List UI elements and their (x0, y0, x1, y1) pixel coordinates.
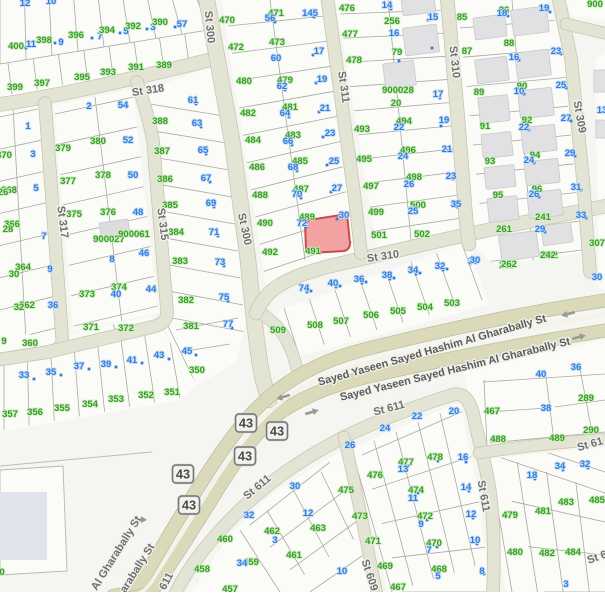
svg-text:30: 30 (339, 210, 350, 221)
svg-text:393: 393 (100, 67, 116, 78)
svg-text:93: 93 (485, 156, 496, 167)
svg-text:488: 488 (252, 190, 268, 201)
svg-text:19: 19 (439, 115, 450, 126)
svg-text:27: 27 (332, 183, 343, 194)
svg-text:507: 507 (333, 316, 349, 327)
svg-text:504: 504 (417, 302, 434, 313)
svg-text:376: 376 (100, 207, 116, 218)
svg-text:52: 52 (123, 135, 134, 146)
svg-text:354: 354 (82, 399, 99, 410)
svg-text:43: 43 (239, 416, 253, 431)
svg-text:27: 27 (561, 113, 572, 124)
svg-text:356: 356 (27, 407, 43, 418)
svg-text:386: 386 (157, 174, 173, 185)
svg-text:478: 478 (346, 55, 362, 66)
svg-text:17: 17 (314, 46, 325, 57)
svg-text:70: 70 (292, 189, 303, 200)
svg-text:242: 242 (540, 250, 556, 261)
svg-text:3: 3 (30, 149, 35, 160)
svg-text:23: 23 (446, 171, 457, 182)
svg-text:390: 390 (152, 17, 168, 28)
svg-text:472: 472 (228, 42, 244, 53)
svg-text:85: 85 (457, 12, 468, 23)
svg-text:34: 34 (555, 461, 566, 472)
svg-text:9: 9 (47, 264, 52, 275)
svg-text:77: 77 (223, 319, 234, 330)
svg-text:470: 470 (219, 15, 235, 26)
svg-text:351: 351 (164, 387, 181, 398)
svg-text:503: 503 (444, 298, 460, 309)
svg-text:30: 30 (470, 255, 481, 266)
svg-text:900: 900 (587, 0, 603, 10)
svg-text:372: 372 (118, 323, 134, 334)
svg-text:469: 469 (377, 561, 393, 572)
svg-text:21: 21 (442, 144, 453, 155)
svg-text:19: 19 (539, 3, 550, 14)
svg-text:38: 38 (541, 403, 552, 414)
svg-text:15: 15 (428, 12, 439, 23)
svg-text:17: 17 (433, 89, 444, 100)
svg-text:467: 467 (390, 582, 406, 592)
svg-text:12: 12 (466, 509, 477, 520)
svg-text:483: 483 (558, 497, 574, 508)
svg-text:355: 355 (54, 403, 71, 414)
svg-text:0: 0 (0, 567, 5, 578)
svg-text:36: 36 (571, 362, 582, 373)
svg-text:493: 493 (354, 124, 370, 135)
svg-text:18: 18 (497, 8, 508, 19)
svg-text:39: 39 (101, 359, 112, 370)
svg-text:467: 467 (484, 406, 500, 417)
svg-text:473: 473 (352, 511, 368, 522)
svg-text:40: 40 (111, 289, 122, 300)
svg-text:26: 26 (529, 189, 540, 200)
svg-text:9: 9 (418, 519, 423, 530)
svg-text:399: 399 (7, 82, 23, 93)
svg-text:16: 16 (389, 28, 400, 39)
svg-text:68: 68 (288, 162, 299, 173)
svg-text:262: 262 (501, 259, 517, 270)
svg-text:62: 62 (277, 81, 288, 92)
svg-text:482: 482 (240, 108, 256, 119)
svg-text:478: 478 (427, 452, 443, 463)
svg-text:381: 381 (183, 321, 200, 332)
svg-text:392: 392 (125, 21, 141, 32)
svg-text:10: 10 (514, 86, 525, 97)
svg-text:486: 486 (249, 162, 265, 173)
svg-text:38: 38 (382, 270, 393, 281)
svg-text:357: 357 (2, 409, 18, 420)
svg-text:383: 383 (172, 256, 188, 267)
svg-text:20: 20 (391, 98, 402, 109)
svg-text:66: 66 (283, 136, 294, 147)
svg-text:16: 16 (509, 52, 520, 63)
svg-text:74: 74 (299, 283, 310, 294)
svg-text:380: 380 (90, 136, 106, 147)
svg-text:60: 60 (271, 53, 282, 64)
svg-text:256: 256 (384, 16, 400, 27)
svg-text:7: 7 (426, 545, 431, 556)
svg-text:89: 89 (474, 87, 485, 98)
svg-text:290: 290 (583, 425, 599, 436)
svg-text:10: 10 (46, 0, 57, 7)
svg-text:475: 475 (338, 485, 355, 496)
svg-text:502: 502 (414, 229, 430, 240)
svg-text:382: 382 (178, 295, 194, 306)
svg-text:5: 5 (33, 183, 39, 194)
svg-text:79: 79 (392, 47, 403, 58)
svg-text:485: 485 (589, 495, 605, 506)
svg-text:35: 35 (451, 199, 462, 210)
svg-text:69: 69 (206, 198, 217, 209)
svg-text:8: 8 (109, 254, 114, 265)
svg-text:506: 506 (363, 310, 379, 321)
svg-text:360: 360 (22, 338, 38, 349)
svg-text:31: 31 (571, 182, 582, 193)
svg-text:50: 50 (128, 170, 139, 181)
svg-text:145: 145 (302, 8, 319, 19)
svg-text:37: 37 (74, 361, 85, 372)
svg-text:18: 18 (527, 470, 538, 481)
svg-text:900061: 900061 (118, 229, 150, 240)
svg-text:67: 67 (201, 173, 212, 184)
svg-text:28: 28 (3, 224, 14, 235)
svg-text:40: 40 (536, 369, 547, 380)
svg-text:24: 24 (380, 423, 391, 434)
svg-text:95: 95 (493, 190, 504, 201)
svg-text:391: 391 (128, 62, 145, 73)
svg-text:36: 36 (48, 300, 59, 311)
svg-text:378: 378 (95, 170, 111, 181)
svg-text:43: 43 (176, 467, 190, 482)
svg-text:25: 25 (556, 80, 567, 91)
svg-text:395: 395 (74, 72, 91, 83)
svg-text:484: 484 (245, 135, 262, 146)
svg-text:41: 41 (127, 355, 138, 366)
svg-text:22: 22 (394, 122, 405, 133)
svg-text:12: 12 (303, 508, 314, 519)
svg-text:29: 29 (565, 148, 576, 159)
svg-text:379: 379 (55, 143, 71, 154)
svg-text:88: 88 (504, 38, 515, 49)
svg-text:480: 480 (507, 547, 523, 558)
svg-text:5: 5 (435, 571, 441, 582)
svg-text:26: 26 (0, 187, 8, 198)
svg-text:12: 12 (20, 0, 31, 9)
svg-text:11: 11 (408, 493, 419, 504)
svg-text:261: 261 (496, 224, 513, 235)
svg-text:20: 20 (449, 406, 460, 417)
svg-text:32: 32 (435, 261, 446, 272)
svg-text:241: 241 (535, 212, 552, 223)
svg-text:377: 377 (60, 176, 76, 187)
svg-text:389: 389 (156, 60, 172, 71)
svg-text:13: 13 (597, 105, 605, 116)
svg-text:34: 34 (237, 558, 248, 569)
svg-text:490: 490 (257, 218, 273, 229)
svg-text:46: 46 (139, 248, 150, 259)
svg-text:10: 10 (470, 535, 481, 546)
svg-text:25: 25 (408, 206, 419, 217)
svg-text:9: 9 (1, 336, 6, 347)
svg-text:2: 2 (86, 101, 91, 112)
svg-text:13: 13 (398, 464, 409, 475)
svg-text:457: 457 (222, 584, 238, 592)
svg-text:57: 57 (177, 19, 188, 30)
svg-text:473: 473 (269, 37, 285, 48)
svg-text:26: 26 (345, 440, 356, 451)
svg-text:21: 21 (320, 103, 331, 114)
svg-text:33: 33 (576, 210, 587, 221)
svg-text:25: 25 (329, 156, 340, 167)
svg-text:370: 370 (0, 150, 12, 161)
svg-text:24: 24 (398, 151, 409, 162)
svg-text:501: 501 (371, 230, 388, 241)
svg-text:458: 458 (194, 564, 210, 575)
svg-text:497: 497 (363, 181, 379, 192)
svg-text:30: 30 (592, 272, 603, 283)
svg-text:91: 91 (480, 121, 491, 132)
svg-text:353: 353 (108, 394, 124, 405)
svg-text:8: 8 (479, 566, 484, 577)
svg-text:350: 350 (189, 365, 205, 376)
svg-text:65: 65 (198, 145, 209, 156)
svg-text:23: 23 (325, 128, 336, 139)
svg-text:396: 396 (68, 30, 84, 41)
svg-text:22: 22 (412, 411, 423, 422)
svg-text:32: 32 (14, 302, 25, 313)
svg-text:476: 476 (367, 470, 383, 481)
svg-text:64: 64 (280, 108, 291, 119)
svg-text:16: 16 (458, 452, 469, 463)
svg-text:476: 476 (339, 3, 355, 14)
svg-text:23: 23 (551, 46, 562, 57)
svg-text:19: 19 (317, 74, 328, 85)
svg-text:491: 491 (305, 246, 322, 257)
svg-text:14: 14 (382, 0, 393, 11)
svg-text:398: 398 (36, 35, 52, 46)
svg-text:45: 45 (182, 346, 193, 357)
svg-text:388: 388 (152, 116, 168, 127)
svg-text:307: 307 (589, 238, 605, 249)
svg-text:43: 43 (270, 424, 284, 439)
svg-text:400: 400 (8, 41, 24, 52)
svg-text:43: 43 (182, 498, 196, 513)
svg-text:489: 489 (549, 433, 565, 444)
svg-text:373: 373 (79, 289, 95, 300)
svg-text:44: 44 (146, 284, 157, 295)
svg-text:75: 75 (219, 292, 230, 303)
svg-text:26: 26 (404, 179, 415, 190)
svg-text:463: 463 (310, 523, 326, 534)
svg-text:352: 352 (138, 390, 154, 401)
svg-text:30: 30 (290, 481, 301, 492)
svg-text:484: 484 (565, 547, 582, 558)
svg-text:3: 3 (272, 535, 277, 546)
svg-text:482: 482 (539, 548, 555, 559)
svg-text:479: 479 (502, 510, 518, 521)
svg-text:9: 9 (58, 37, 63, 48)
svg-text:48: 48 (133, 207, 144, 218)
svg-text:87: 87 (462, 46, 473, 57)
svg-text:71: 71 (209, 227, 220, 238)
svg-text:289: 289 (578, 393, 594, 404)
svg-text:34: 34 (408, 265, 419, 276)
svg-text:1: 1 (25, 121, 31, 132)
svg-text:480: 480 (236, 76, 252, 87)
svg-text:471: 471 (365, 536, 382, 547)
svg-text:509: 509 (270, 325, 286, 336)
svg-text:7: 7 (41, 231, 46, 242)
svg-text:387: 387 (154, 146, 170, 157)
svg-text:492: 492 (262, 247, 278, 258)
svg-text:36: 36 (354, 274, 365, 285)
svg-text:43: 43 (238, 449, 252, 464)
svg-text:477: 477 (342, 29, 358, 40)
svg-text:43: 43 (154, 350, 165, 361)
svg-text:72: 72 (297, 218, 308, 229)
svg-text:24: 24 (524, 155, 535, 166)
svg-text:40: 40 (328, 278, 339, 289)
svg-text:61: 61 (188, 95, 199, 106)
svg-text:32: 32 (580, 459, 591, 470)
svg-text:29: 29 (535, 224, 546, 235)
svg-text:22: 22 (519, 122, 530, 133)
svg-text:3: 3 (563, 579, 568, 590)
svg-text:32: 32 (244, 510, 255, 521)
svg-text:900028: 900028 (382, 85, 414, 96)
svg-text:461: 461 (286, 550, 303, 561)
svg-text:63: 63 (192, 118, 203, 129)
svg-text:33: 33 (19, 370, 30, 381)
svg-text:397: 397 (34, 78, 50, 89)
svg-text:505: 505 (390, 306, 407, 317)
svg-text:460: 460 (217, 534, 233, 545)
svg-text:54: 54 (118, 100, 129, 111)
svg-text:394: 394 (99, 25, 116, 36)
svg-text:495: 495 (356, 154, 373, 165)
svg-text:73: 73 (215, 257, 226, 268)
svg-text:35: 35 (46, 367, 57, 378)
svg-text:30: 30 (9, 269, 20, 280)
svg-text:499: 499 (368, 207, 384, 218)
svg-text:488: 488 (490, 434, 506, 445)
svg-text:14: 14 (461, 482, 472, 493)
svg-text:508: 508 (307, 320, 323, 331)
svg-text:56: 56 (265, 13, 276, 24)
svg-text:371: 371 (83, 322, 100, 333)
svg-text:481: 481 (535, 506, 552, 517)
svg-text:10: 10 (337, 566, 348, 577)
